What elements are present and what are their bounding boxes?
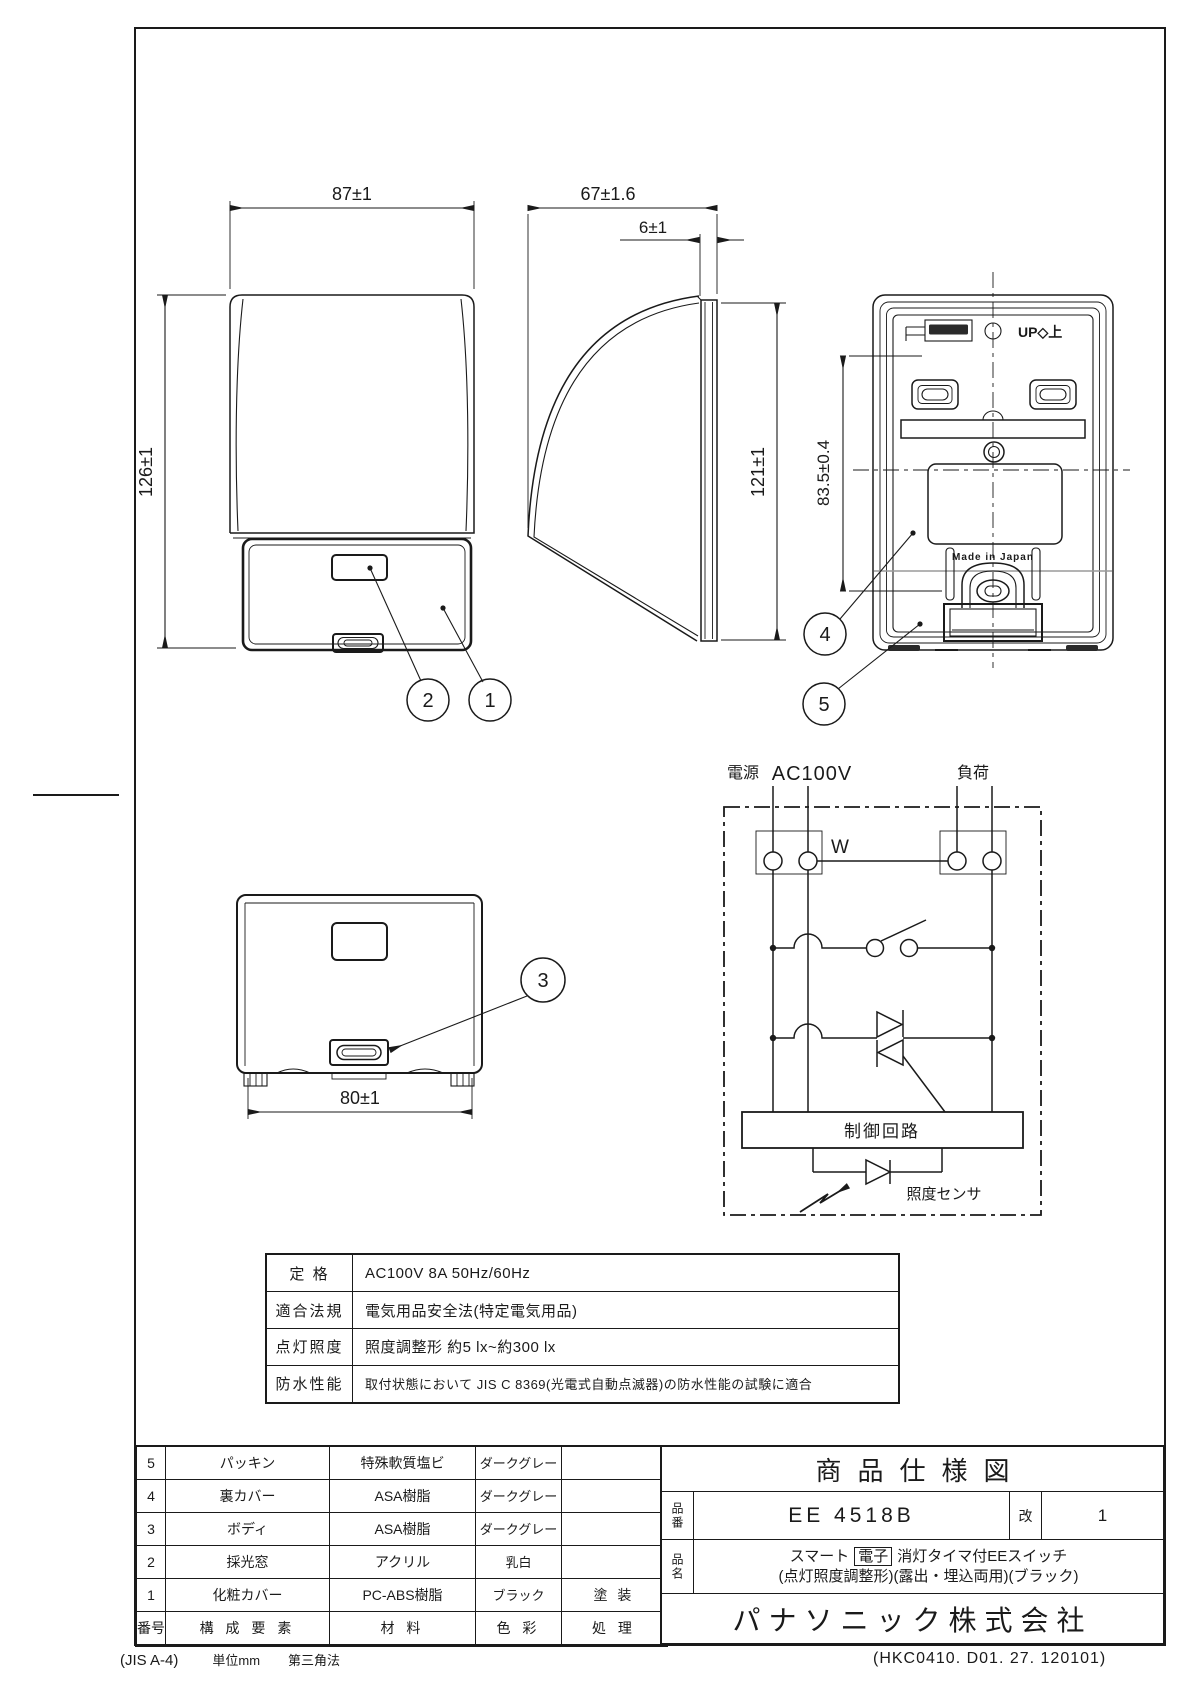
circuit-diagram: 電源 AC100V 負荷 W [724,763,1041,1215]
part-process [562,1446,668,1479]
part-number: EE 4518B [694,1492,1010,1539]
sensor-label: 照度センサ [906,1186,981,1203]
bottom-foot-left [244,1073,267,1086]
back-terminal-cover [928,464,1062,544]
parts-table: 5 パッキン 特殊軟質塩ビ ダークグレー 4 裏カバー ASA樹脂 ダークグレー… [135,1445,660,1645]
light-arrow-icon [800,1186,848,1212]
circuit-boundary [724,807,1041,1215]
product-name-part: 消灯タイマ付EEスイッチ [897,1548,1067,1565]
unit-note: 単位mm [212,1653,260,1668]
dim-side-height: 121±1 [748,447,768,497]
drawing-canvas: 87±1 126±1 2 1 67±1.6 6±1 121±1 [0,0,1190,1684]
callout-2: 2 [422,690,433,712]
callout-4: 4 [819,624,830,646]
part-no: 3 [136,1512,166,1545]
back-slot-left [912,380,958,409]
parts-row: 5 パッキン 特殊軟質塩ビ ダークグレー [136,1446,667,1479]
dim-bottom-width: 80±1 [340,1088,380,1108]
back-bottom-bracket [944,604,1042,641]
product-name: スマート電子消灯タイマ付EEスイッチ (点灯照度調整形)(露出・埋込両用)(ブラ… [694,1540,1163,1593]
circuit-wire-label: W [831,837,849,858]
back-view: UP◇上 Made in Japan [853,272,1130,668]
part-process [562,1512,668,1545]
part-component: ボディ [166,1512,330,1545]
part-component: パッキン [166,1446,330,1479]
made-in-label: Made in Japan [952,552,1034,563]
spec-value: 電気用品安全法(特定電気用品) [353,1292,900,1329]
doc-title: 商品仕様図 [662,1447,1163,1492]
circuit-load-label: 負荷 [957,764,989,782]
spec-row: 防水性能 取付状態において JIS C 8369(光電式自動点滅器)の防水性能の… [266,1365,899,1403]
front-view-dimensions: 87±1 126±1 [136,184,474,648]
part-color: 乳白 [476,1545,562,1578]
product-name-part: スマート [790,1548,850,1565]
part-no: 2 [136,1545,166,1578]
product-name-badge: 電子 [854,1547,892,1566]
parts-header-no: 番号 [136,1611,166,1646]
back-slot-right [1030,380,1076,409]
part-process [562,1479,668,1512]
revision-label: 改 [1010,1492,1042,1539]
spec-row: 適合法規 電気用品安全法(特定電気用品) [266,1292,899,1329]
title-block: 商品仕様図 品番 EE 4518B 改 1 品名 スマート電子消灯タイマ付EEス… [660,1445,1165,1645]
spec-label: 適合法規 [266,1292,353,1329]
spec-value: AC100V 8A 50Hz/60Hz [353,1254,900,1292]
part-material: ASA樹脂 [330,1479,476,1512]
dim-side-depth: 67±1.6 [581,184,636,204]
product-name-line2: (点灯照度調整形)(露出・埋込両用)(ブラック) [779,1567,1079,1587]
sheet-size: (JIS A-4) [120,1652,178,1669]
parts-header-process: 処 理 [562,1611,668,1646]
part-color: ダークグレー [476,1446,562,1479]
part-process: 塗 装 [562,1578,668,1611]
up-label: UP◇上 [1018,324,1062,340]
part-material: PC-ABS樹脂 [330,1578,476,1611]
relay-contact-branch [770,920,995,957]
company-name: パナソニック株式会社 [662,1594,1163,1643]
circuit-voltage-label: AC100V [772,763,853,785]
part-component: 採光窓 [166,1545,330,1578]
back-view-callouts: 4 5 [803,530,923,725]
spec-sheet-page: 87±1 126±1 2 1 67±1.6 6±1 121±1 [0,0,1190,1684]
product-name-label: 品名 [662,1540,694,1593]
spec-label: 点灯照度 [266,1328,353,1365]
back-connector [906,320,972,341]
part-component: 化粧カバー [166,1578,330,1611]
parts-row: 4 裏カバー ASA樹脂 ダークグレー [136,1479,667,1512]
parts-row: 2 採光窓 アクリル 乳白 [136,1545,667,1578]
callout-5: 5 [818,694,829,716]
dim-front-width: 87±1 [332,184,372,204]
callout-1: 1 [484,690,495,712]
spec-label: 防水性能 [266,1365,353,1403]
revision-value: 1 [1042,1492,1163,1539]
side-view-dimensions: 67±1.6 6±1 121±1 [528,184,786,640]
dim-back-mount-pitch: 83.5±0.4 [814,440,833,506]
spec-label: 定 格 [266,1254,353,1292]
part-material: ASA樹脂 [330,1512,476,1545]
part-material: アクリル [330,1545,476,1578]
part-material: 特殊軟質塩ビ [330,1446,476,1479]
parts-header-material: 材 料 [330,1611,476,1646]
part-number-label: 品番 [662,1492,694,1539]
part-color: ブラック [476,1578,562,1611]
circuit-source-label: 電源 [727,764,759,782]
part-color: ダークグレー [476,1512,562,1545]
part-component: 裏カバー [166,1479,330,1512]
side-view [528,296,717,641]
product-name-line1: スマート電子消灯タイマ付EEスイッチ [790,1547,1068,1567]
footer-doc-code: (HKC0410. D01. 27. 120101) [873,1650,1106,1668]
part-number-row: 品番 EE 4518B 改 1 [662,1492,1163,1540]
back-screw [984,442,1004,462]
front-view [230,295,474,652]
triac-branch [770,1010,995,1112]
spec-value: 照度調整形 約5 lx~約300 lx [353,1328,900,1365]
part-process [562,1545,668,1578]
control-circuit-label: 制御回路 [844,1122,920,1141]
parts-row: 3 ボディ ASA樹脂 ダークグレー [136,1512,667,1545]
part-no: 4 [136,1479,166,1512]
projection-note: 第三角法 [288,1653,340,1668]
parts-header-color: 色 彩 [476,1611,562,1646]
dim-side-back-plate: 6±1 [639,218,667,237]
back-cable-gland [962,563,1024,608]
product-name-row: 品名 スマート電子消灯タイマ付EEスイッチ (点灯照度調整形)(露出・埋込両用)… [662,1540,1163,1594]
part-no: 1 [136,1578,166,1611]
spec-table: 定 格 AC100V 8A 50Hz/60Hz 適合法規 電気用品安全法(特定電… [265,1253,900,1404]
bottom-view [237,895,482,1086]
spec-row: 点灯照度 照度調整形 約5 lx~約300 lx [266,1328,899,1365]
bottom-view-dimensions: 80±1 3 [248,958,565,1119]
footer-left: (JIS A-4)単位mm第三角法 [120,1650,368,1669]
bottom-foot-right [451,1073,474,1086]
side-back-plate [701,300,717,641]
spec-row: 定 格 AC100V 8A 50Hz/60Hz [266,1254,899,1292]
callout-3: 3 [537,970,548,992]
front-light-window [332,555,387,580]
parts-header-row: 番号 構 成 要 素 材 料 色 彩 処 理 [136,1611,667,1646]
dim-front-height: 126±1 [136,447,156,497]
front-view-callouts: 2 1 [367,565,511,721]
spec-value: 取付状態において JIS C 8369(光電式自動点滅器)の防水性能の試験に適合 [353,1365,900,1403]
part-color: ダークグレー [476,1479,562,1512]
part-no: 5 [136,1446,166,1479]
parts-header-component: 構 成 要 素 [166,1611,330,1646]
bottom-light-window [332,923,387,960]
parts-row: 1 化粧カバー PC-ABS樹脂 ブラック 塗 装 [136,1578,667,1611]
